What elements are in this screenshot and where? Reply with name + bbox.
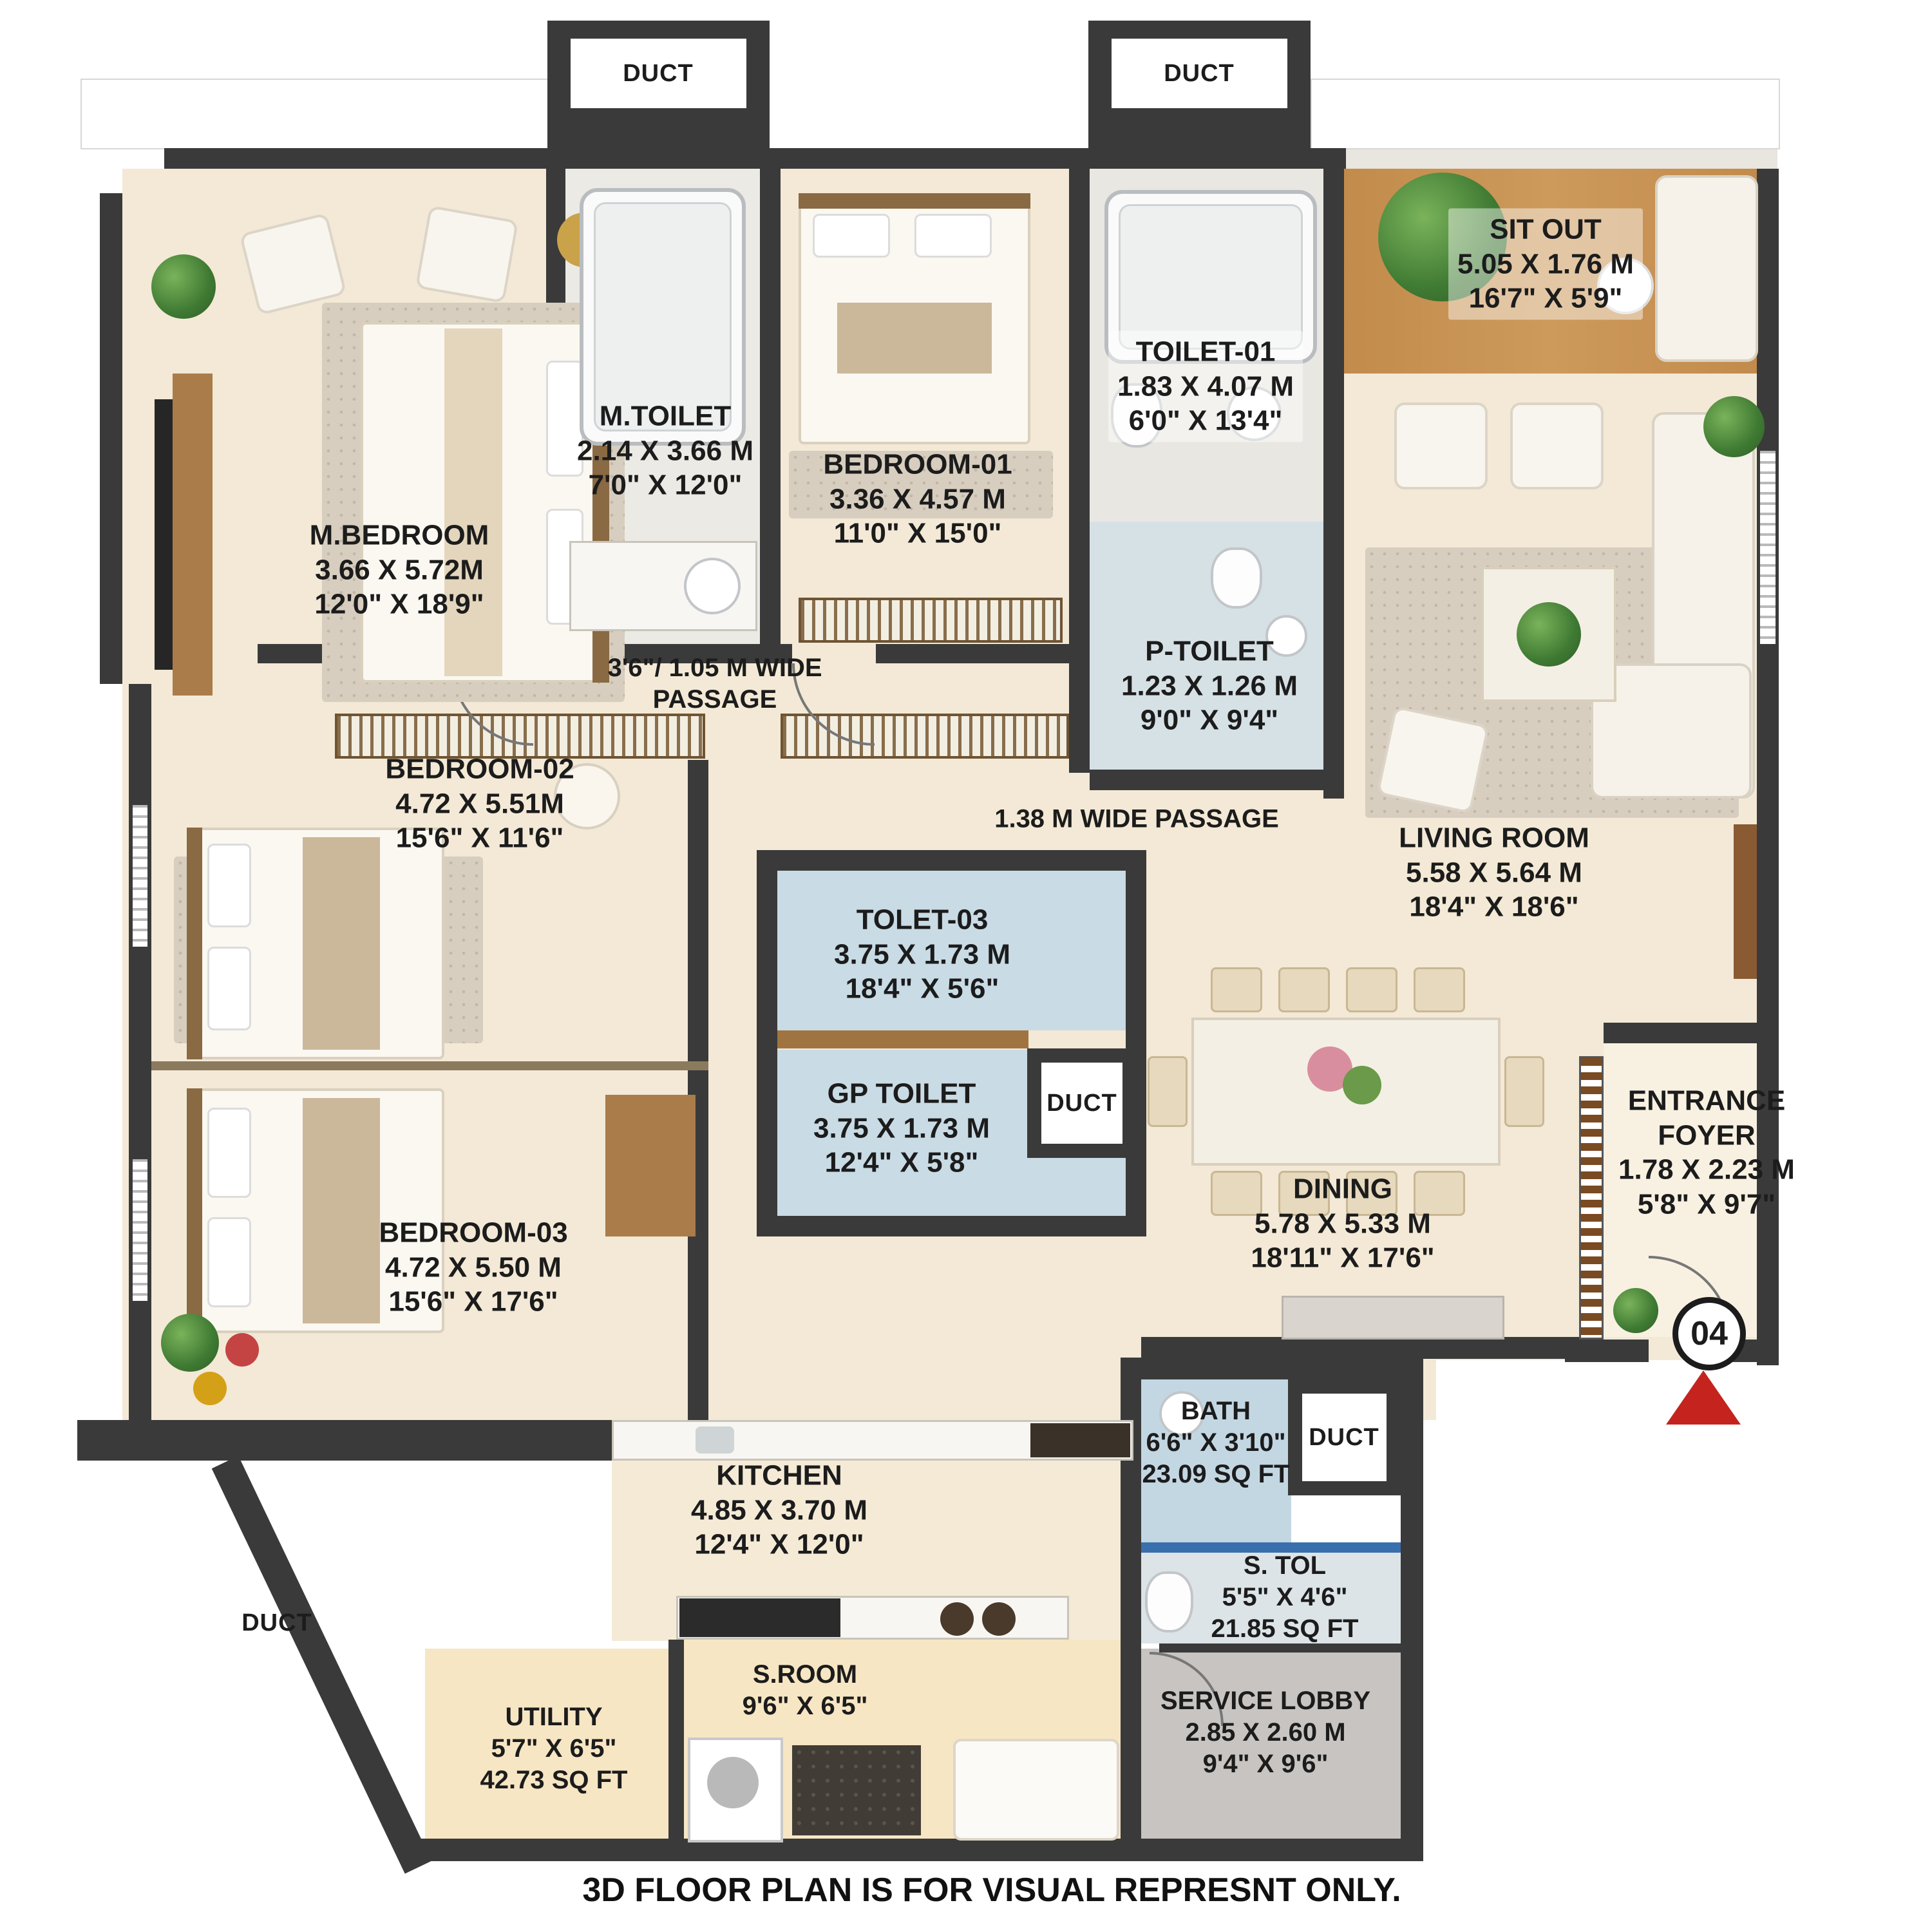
wall-toletblock-mid <box>777 1030 1028 1048</box>
plant-coffee-table <box>1517 602 1581 667</box>
chair-living-1 <box>1394 402 1488 489</box>
room-dim-m: 5.58 X 5.64 M <box>1399 855 1589 890</box>
wall-left-upper <box>100 193 122 684</box>
console-dining <box>1282 1296 1504 1340</box>
room-area: 21.85 SQ FT <box>1211 1613 1359 1644</box>
bed-throw-bedroom-02 <box>303 837 380 1050</box>
window-left-1 <box>133 805 147 947</box>
pillow-bedroom-02-1 <box>207 844 251 927</box>
duct-label-mid: DUCT <box>1046 1088 1117 1118</box>
room-name: BATH <box>1142 1396 1290 1427</box>
bed-runner-m-bedroom <box>444 328 502 676</box>
passage-label-138: 1.38 M WIDE PASSAGE <box>994 804 1279 835</box>
wall-toletblock-right <box>1126 850 1146 1236</box>
kitchen-bowl-1 <box>940 1602 974 1636</box>
cabinet-m-bedroom <box>173 374 213 696</box>
room-name: M.BEDROOM <box>310 518 489 553</box>
flower-red-bedroom-03 <box>225 1333 259 1367</box>
wall-toletblock-bottom <box>757 1216 1146 1236</box>
passage-text: PASSAGE <box>607 684 822 715</box>
room-label-m-toilet: M.TOILET 2.14 X 3.66 M 7'0" X 12'0" <box>577 399 753 502</box>
kitchen-bowl-2 <box>982 1602 1016 1636</box>
room-name: TOLET-03 <box>834 902 1010 937</box>
room-dim-ft: 9'6" X 6'5" <box>743 1690 868 1722</box>
room-dim-ft: 18'4" X 5'6" <box>834 972 1010 1007</box>
outer-band-top-left <box>80 79 553 149</box>
room-label-entrance-foyer: ENTRANCE FOYER 1.78 X 2.23 M 5'8" X 9'7" <box>1597 1084 1816 1222</box>
room-label-living-room: LIVING ROOM 5.58 X 5.64 M 18'4" X 18'6" <box>1399 820 1589 924</box>
wall-diagonal <box>212 1456 432 1874</box>
room-dim-ft: 9'4" X 9'6" <box>1160 1748 1370 1779</box>
room-dim-ft: 18'4" X 18'6" <box>1399 890 1589 925</box>
room-name: M.TOILET <box>577 399 753 433</box>
tv-unit-living <box>1734 824 1757 979</box>
room-label-s-room: S.ROOM 9'6" X 6'5" <box>743 1659 868 1722</box>
pillow-bedroom-03-2 <box>207 1217 251 1307</box>
room-label-bedroom-02: BEDROOM-02 4.72 X 5.51M 15'6" X 11'6" <box>385 752 574 855</box>
room-dim-m: 2.85 X 2.60 M <box>1160 1717 1370 1748</box>
room-label-utility: UTILITY 5'7" X 6'5" 42.73 SQ FT <box>480 1701 628 1795</box>
wardrobe-bedroom-01 <box>799 598 1063 643</box>
room-dim-ft: 11'0" X 15'0" <box>823 516 1012 551</box>
dining-flowers-green <box>1343 1066 1381 1104</box>
room-name: BEDROOM-03 <box>379 1215 567 1250</box>
room-label-tolet-03: TOLET-03 3.75 X 1.73 M 18'4" X 5'6" <box>834 902 1010 1006</box>
passage-label-105: 3'6"/ 1.05 M WIDE PASSAGE <box>607 652 822 715</box>
room-dim-ft: 5'8" X 9'7" <box>1597 1188 1816 1222</box>
headboard-bedroom-02 <box>187 828 202 1059</box>
room-name: TOILET-01 <box>1117 334 1294 369</box>
room-name: GP TOILET <box>813 1076 990 1111</box>
exterior-gap <box>1436 1360 1797 1425</box>
duct-text: DUCT <box>1164 59 1235 88</box>
room-dim-ft: 6'6" X 3'10" <box>1142 1427 1290 1459</box>
room-dim-ft: 9'0" X 9'4" <box>1121 703 1298 738</box>
room-dim-ft: 6'0" X 13'4" <box>1117 404 1294 439</box>
plant-m-bedroom <box>151 254 216 319</box>
wall-bed2-bed3-divider <box>151 1061 708 1070</box>
mat-s-room <box>792 1745 921 1835</box>
duct-text: DUCT <box>1046 1088 1117 1118</box>
room-name: S.ROOM <box>743 1659 868 1690</box>
disclaimer-text: 3D FLOOR PLAN IS FOR VISUAL REPRESNT ONL… <box>582 1871 1401 1909</box>
flower-yellow-bedroom-03 <box>193 1372 227 1405</box>
wc-p-toilet <box>1211 547 1262 609</box>
room-dim-m: 4.72 X 5.51M <box>385 786 574 821</box>
duct-text: DUCT <box>241 1608 312 1638</box>
pillow-bedroom-03-1 <box>207 1108 251 1198</box>
dining-chair-left <box>1148 1056 1188 1127</box>
headboard-bedroom-03 <box>187 1088 202 1333</box>
room-dim-ft: 15'6" X 11'6" <box>385 821 574 856</box>
window-left-2 <box>133 1159 147 1301</box>
room-name: ENTRANCE FOYER <box>1597 1084 1816 1153</box>
pillow-bedroom-01-1 <box>813 214 890 258</box>
room-dim-m: 3.36 X 4.57 M <box>823 482 1012 516</box>
room-dim-m: 1.23 X 1.26 M <box>1121 668 1298 703</box>
wall-stol-bottom <box>1159 1643 1401 1653</box>
room-dim-m: 3.75 X 1.73 M <box>834 937 1010 972</box>
room-dim-ft: 15'6" X 17'6" <box>379 1285 567 1320</box>
room-name: KITCHEN <box>691 1458 867 1493</box>
wall-mtoilet-bed1 <box>760 169 781 663</box>
headboard-bedroom-01 <box>799 193 1030 209</box>
tv-panel-m-bedroom <box>155 399 173 670</box>
duct-label-bath: DUCT <box>1309 1423 1379 1452</box>
room-dim-ft: 7'0" X 12'0" <box>577 468 753 503</box>
window-right <box>1760 451 1776 644</box>
room-dim-m: 3.75 X 1.73 M <box>813 1111 990 1146</box>
duct-label-bottom-left: DUCT <box>241 1608 312 1638</box>
room-label-bedroom-01: BEDROOM-01 3.36 X 4.57 M 11'0" X 15'0" <box>823 447 1012 551</box>
dining-chair-t2 <box>1278 967 1330 1012</box>
wall-bottom <box>412 1839 1423 1861</box>
armchair-m-bedroom-2 <box>415 205 518 303</box>
unit-number-badge: 04 <box>1672 1297 1746 1370</box>
bed-throw-bedroom-03 <box>303 1098 380 1323</box>
room-name: SERVICE LOBBY <box>1160 1685 1370 1717</box>
chair-living-2 <box>1510 402 1604 489</box>
room-dim-m: 5.78 X 5.33 M <box>1251 1206 1434 1241</box>
room-label-m-bedroom: M.BEDROOM 3.66 X 5.72M 12'0" X 18'9" <box>310 518 489 621</box>
room-label-bath: BATH 6'6" X 3'10" 23.09 SQ FT <box>1142 1396 1290 1490</box>
wall-toletblock-left <box>757 850 777 1236</box>
room-label-s-tol: S. TOL 5'5" X 4'6" 21.85 SQ FT <box>1211 1550 1359 1644</box>
wall-ptoilet-bottom <box>1090 770 1344 790</box>
wall-foyer-top <box>1604 1023 1757 1043</box>
wall-bottom-left-band <box>77 1420 612 1461</box>
room-dim-m: 4.72 X 5.50 M <box>379 1250 567 1285</box>
plant-foyer <box>1613 1288 1658 1333</box>
wall-bathblock-top <box>1141 1358 1423 1379</box>
wall-toletblock-top <box>757 850 1146 871</box>
floor-plan: M.BEDROOM 3.66 X 5.72M 12'0" X 18'9" M.T… <box>0 0 1932 1932</box>
passage-text: 3'6"/ 1.05 M WIDE <box>607 652 822 684</box>
wall-bed1-toilet1 <box>1069 169 1090 773</box>
room-label-service-lobby: SERVICE LOBBY 2.85 X 2.60 M 9'4" X 9'6" <box>1160 1685 1370 1779</box>
room-dim-ft: 5'5" X 4'6" <box>1211 1582 1359 1613</box>
duct-label-top-left: DUCT <box>623 59 694 88</box>
unit-number: 04 <box>1690 1314 1728 1353</box>
wall-rightblock-right <box>1401 1379 1423 1861</box>
room-dim-m: 1.83 X 4.07 M <box>1117 369 1294 404</box>
desk-bedroom-03 <box>605 1095 696 1236</box>
passage-text: 1.38 M WIDE PASSAGE <box>994 804 1279 835</box>
pillow-bedroom-02-2 <box>207 947 251 1030</box>
outer-band-top-right <box>1311 79 1780 149</box>
wall-left-lower <box>129 684 151 1420</box>
room-label-toilet-01: TOILET-01 1.83 X 4.07 M 6'0" X 13'4" <box>1108 330 1303 442</box>
room-dim-ft: 18'11" X 17'6" <box>1251 1241 1434 1276</box>
entrance-arrow-icon <box>1666 1370 1741 1425</box>
room-dim-m: 1.78 X 2.23 M <box>1597 1153 1816 1188</box>
room-label-p-toilet: P-TOILET 1.23 X 1.26 M 9'0" X 9'4" <box>1121 634 1298 737</box>
dining-chair-t3 <box>1346 967 1397 1012</box>
bedding-s-room <box>953 1739 1119 1841</box>
room-label-dining: DINING 5.78 X 5.33 M 18'11" X 17'6" <box>1251 1171 1434 1275</box>
bed-throw-bedroom-01 <box>837 303 992 374</box>
room-area: 23.09 SQ FT <box>1142 1458 1290 1490</box>
basin-m-toilet <box>684 558 741 614</box>
sofa-sit-out <box>1655 175 1758 362</box>
duct-label-top-mid: DUCT <box>1164 59 1235 88</box>
wall-dining-bottom <box>1141 1337 1581 1359</box>
room-name: P-TOILET <box>1121 634 1298 668</box>
room-dim-m: 5.05 X 1.76 M <box>1457 247 1634 281</box>
room-dim-m: 3.66 X 5.72M <box>310 553 489 587</box>
dining-chair-t4 <box>1414 967 1465 1012</box>
room-name: UTILITY <box>480 1701 628 1733</box>
room-name: LIVING ROOM <box>1399 820 1589 855</box>
wall-bedrooms-right <box>688 760 708 1420</box>
room-label-sit-out: SIT OUT 5.05 X 1.76 M 16'7" X 5'9" <box>1448 208 1643 319</box>
room-dim-ft: 5'7" X 6'5" <box>480 1733 628 1765</box>
room-name: SIT OUT <box>1457 212 1634 247</box>
cooktop <box>679 1598 840 1637</box>
room-label-kitchen: KITCHEN 4.85 X 3.70 M 12'4" X 12'0" <box>691 1458 867 1562</box>
room-label-gp-toilet: GP TOILET 3.75 X 1.73 M 12'4" X 5'8" <box>813 1076 990 1180</box>
kitchen-counter-appliance <box>1030 1423 1130 1457</box>
room-dim-m: 4.85 X 3.70 M <box>691 1493 867 1528</box>
pillow-bedroom-01-2 <box>914 214 992 258</box>
washing-machine-door <box>707 1757 759 1808</box>
wall-entry-left <box>1565 1340 1649 1362</box>
duct-text: DUCT <box>623 59 694 88</box>
room-name: BEDROOM-02 <box>385 752 574 786</box>
room-dim-ft: 12'4" X 5'8" <box>813 1146 990 1180</box>
dining-chair-t1 <box>1211 967 1262 1012</box>
room-label-bedroom-03: BEDROOM-03 4.72 X 5.50 M 15'6" X 17'6" <box>379 1215 567 1319</box>
plant-bedroom-03 <box>161 1314 219 1372</box>
room-dim-m: 2.14 X 3.66 M <box>577 433 753 468</box>
duct-text: DUCT <box>1309 1423 1379 1452</box>
room-name: S. TOL <box>1211 1550 1359 1582</box>
room-area: 42.73 SQ FT <box>480 1764 628 1795</box>
wall-utility-sroom <box>668 1640 684 1839</box>
room-name: DINING <box>1251 1171 1434 1206</box>
wall-living-left <box>1323 169 1344 799</box>
kitchen-sink <box>696 1426 734 1454</box>
room-dim-ft: 12'0" X 18'9" <box>310 587 489 622</box>
room-name: BEDROOM-01 <box>823 447 1012 482</box>
dining-chair-right <box>1504 1056 1544 1127</box>
room-dim-ft: 16'7" X 5'9" <box>1457 281 1634 316</box>
wc-s-tol <box>1145 1571 1193 1633</box>
wall-sitout-top <box>1344 149 1777 169</box>
plant-living-corner <box>1703 396 1765 457</box>
room-dim-ft: 12'4" X 12'0" <box>691 1528 867 1562</box>
